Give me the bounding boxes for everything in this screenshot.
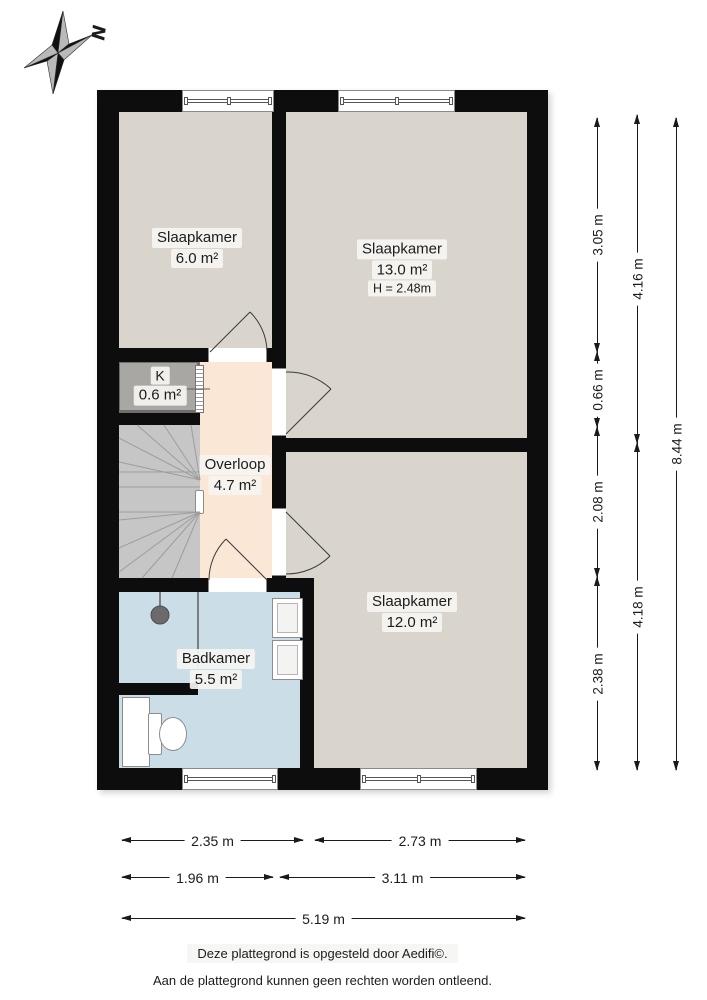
wall-exterior-bottom bbox=[97, 768, 548, 790]
footer-disclaimer-text: Aan de plattegrond kunnen geen rechten w… bbox=[143, 971, 502, 990]
wall-right-rooms-divider bbox=[286, 438, 527, 452]
window-top-left bbox=[182, 90, 274, 112]
dim-5-19: 5.19 m bbox=[122, 918, 525, 919]
dim-8-44: 8.44 m bbox=[676, 118, 677, 770]
dim-label: 5.19 m bbox=[295, 911, 352, 927]
room-ceiling-height: H = 2.48m bbox=[368, 280, 436, 296]
window-mullion bbox=[227, 97, 231, 105]
footer-credit: Deze plattegrond is opgesteld door Aedif… bbox=[0, 944, 645, 963]
dim-label: 3.11 m bbox=[375, 870, 431, 886]
window-mullion bbox=[268, 97, 272, 105]
room-label-badkamer: Badkamer 5.5 m² bbox=[177, 649, 255, 689]
floor-plan: Slaapkamer 6.0 m² Slaapkamer 13.0 m² H =… bbox=[97, 90, 548, 790]
cabinet-door bbox=[277, 603, 298, 633]
dim-label: 3.05 m bbox=[591, 208, 606, 261]
room-area: 6.0 m² bbox=[171, 249, 224, 269]
dim-label: 2.73 m bbox=[392, 833, 449, 849]
wall-exterior-right bbox=[527, 90, 548, 790]
dim-2-38: 2.38 m bbox=[597, 577, 598, 770]
dim-label: 0.66 m bbox=[591, 363, 606, 416]
room-label-slaapkamer-12: Slaapkamer 12.0 m² bbox=[367, 592, 457, 632]
door-opening-badkamer bbox=[208, 578, 267, 592]
wall-exterior-top bbox=[97, 90, 548, 112]
dim-label: 8.44 m bbox=[670, 417, 685, 470]
room-label-closet-k: K 0.6 m² bbox=[134, 367, 187, 406]
dim-3-05: 3.05 m bbox=[597, 118, 598, 352]
room-name: Badkamer bbox=[177, 649, 255, 669]
compass-north-label: N bbox=[86, 24, 109, 42]
room-name: Slaapkamer bbox=[367, 592, 457, 612]
room-area: 13.0 m² bbox=[372, 260, 433, 280]
bathroom-cabinet-lower bbox=[272, 640, 303, 680]
cabinet-door bbox=[277, 645, 298, 675]
bathroom-cabinet-upper bbox=[272, 598, 303, 638]
dim-0-66: 0.66 m bbox=[597, 352, 598, 427]
room-name: Slaapkamer bbox=[152, 228, 242, 248]
room-area: 12.0 m² bbox=[382, 613, 443, 633]
room-name: Overloop bbox=[200, 455, 271, 475]
dim-2-73: 2.73 m bbox=[315, 840, 525, 841]
dim-1-96: 1.96 m bbox=[122, 877, 273, 878]
room-name: K bbox=[150, 367, 169, 385]
door-opening-slaapkamer-13 bbox=[272, 368, 286, 436]
dim-label: 2.35 m bbox=[184, 833, 241, 849]
stairs-area-fill bbox=[119, 425, 200, 578]
dim-2-35: 2.35 m bbox=[122, 840, 303, 841]
room-area: 0.6 m² bbox=[134, 386, 187, 406]
floorplan-page: N bbox=[0, 0, 707, 1000]
window-badkamer bbox=[182, 768, 278, 790]
wall-bedrooms-divider bbox=[272, 112, 286, 348]
window-top-right bbox=[338, 90, 455, 112]
dim-4-16: 4.16 m bbox=[637, 115, 638, 443]
window-slaapkamer-12 bbox=[360, 768, 477, 790]
window-mullion bbox=[471, 775, 475, 783]
closet-louvre-door bbox=[195, 365, 204, 413]
window-glazing bbox=[186, 777, 274, 781]
footer-credit-text: Deze plattegrond is opgesteld door Aedif… bbox=[187, 944, 457, 963]
window-mullion bbox=[362, 775, 366, 783]
room-label-slaapkamer-13: Slaapkamer 13.0 m² H = 2.48m bbox=[357, 239, 447, 296]
window-mullion bbox=[340, 97, 344, 105]
toilet-bowl bbox=[159, 717, 187, 751]
window-mullion bbox=[449, 97, 453, 105]
window-mullion bbox=[184, 97, 188, 105]
window-mullion bbox=[184, 775, 188, 783]
wall-badkamer-north bbox=[97, 578, 314, 592]
room-area: 4.7 m² bbox=[209, 476, 262, 496]
window-mullion bbox=[395, 97, 399, 105]
dim-label: 2.08 m bbox=[591, 475, 606, 528]
window-mullion bbox=[272, 775, 276, 783]
window-mullion bbox=[417, 775, 421, 783]
compass: N bbox=[20, 8, 130, 98]
door-opening-slaapkamer-12 bbox=[272, 508, 286, 576]
dim-2-08: 2.08 m bbox=[597, 427, 598, 577]
dim-4-18: 4.18 m bbox=[637, 443, 638, 770]
room-label-overloop: Overloop 4.7 m² bbox=[200, 455, 271, 495]
radiator bbox=[122, 697, 150, 767]
door-opening-slaapkamer-6 bbox=[208, 348, 267, 362]
room-name: Slaapkamer bbox=[357, 239, 447, 259]
footer-disclaimer: Aan de plattegrond kunnen geen rechten w… bbox=[0, 971, 645, 990]
dim-label: 1.96 m bbox=[169, 870, 226, 886]
wall-closet-south bbox=[97, 413, 200, 425]
dim-label: 4.18 m bbox=[631, 580, 646, 633]
room-area: 5.5 m² bbox=[190, 670, 243, 690]
dim-3-11: 3.11 m bbox=[280, 877, 525, 878]
dim-label: 4.16 m bbox=[631, 252, 646, 305]
dim-label: 2.38 m bbox=[591, 647, 606, 700]
room-label-slaapkamer-6: Slaapkamer 6.0 m² bbox=[152, 228, 242, 268]
compass-rose-icon bbox=[20, 8, 100, 98]
